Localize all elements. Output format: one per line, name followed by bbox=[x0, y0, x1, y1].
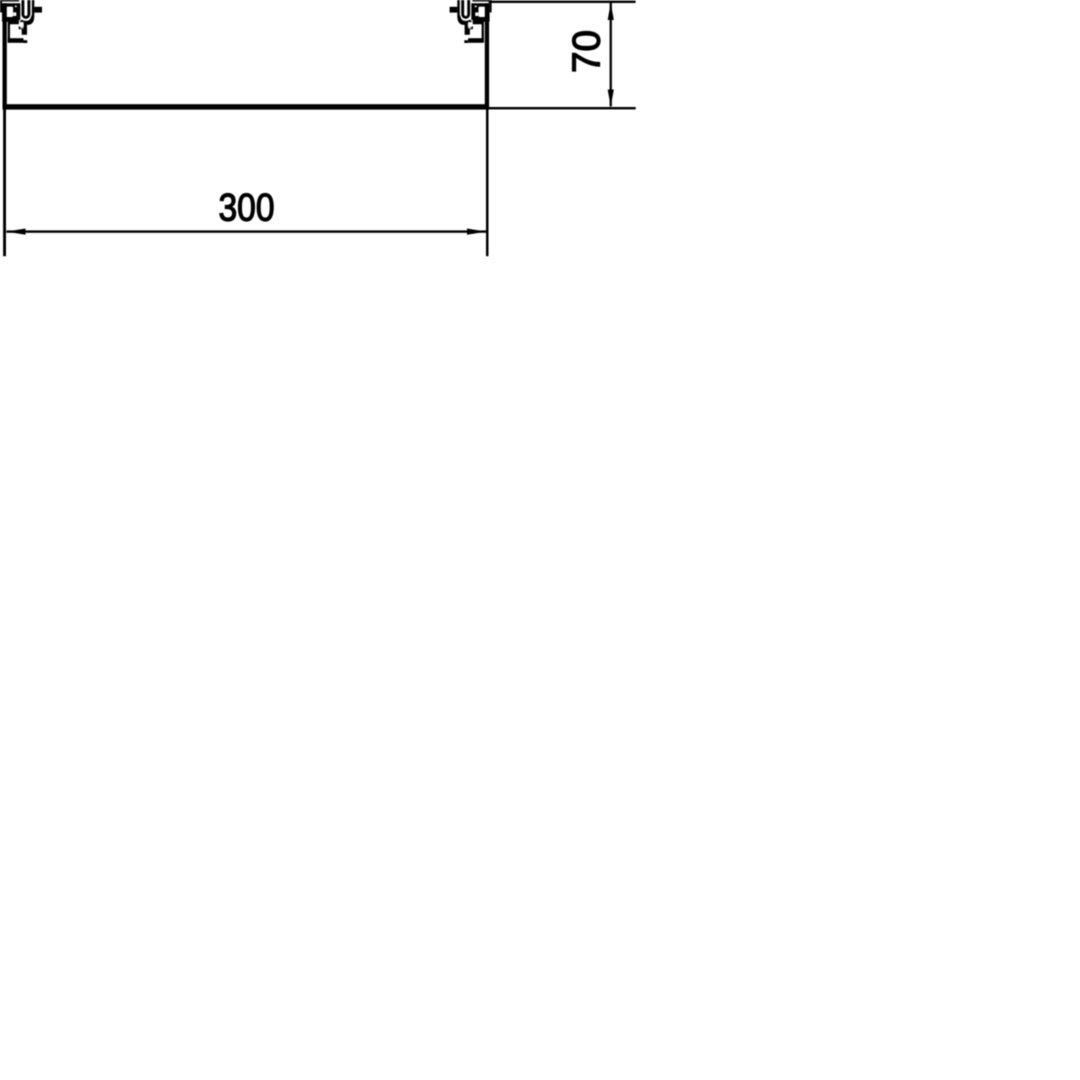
svg-text:70: 70 bbox=[566, 30, 609, 73]
svg-text:300: 300 bbox=[219, 187, 275, 230]
